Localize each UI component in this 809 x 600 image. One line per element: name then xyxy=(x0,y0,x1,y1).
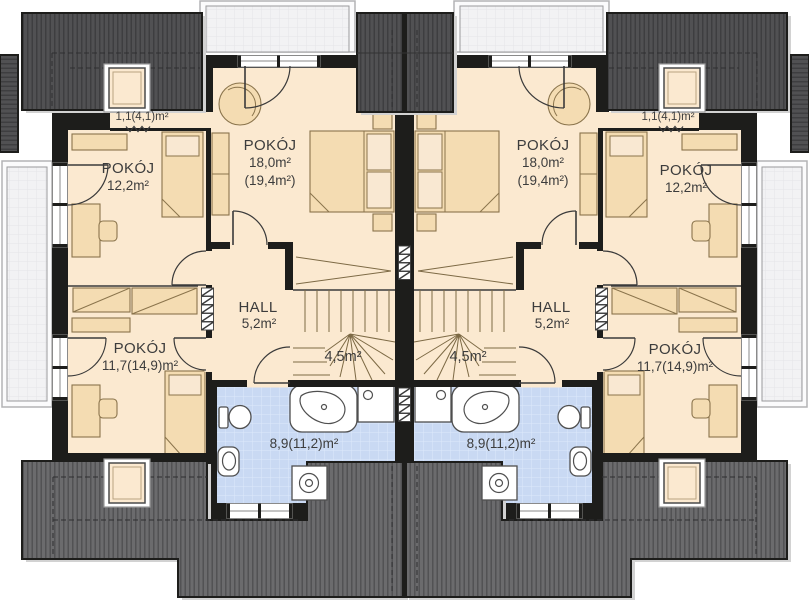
armchair xyxy=(548,83,590,125)
dormer-window xyxy=(104,64,150,112)
label-bedroom-back-name-left: POKÓJ xyxy=(114,341,167,356)
bathroom-window xyxy=(517,504,582,519)
roof-top-center xyxy=(357,13,457,115)
label-bathroom-area-left: 8,9(11,2)m² xyxy=(270,437,339,451)
chair xyxy=(692,221,710,241)
balcony-side-right xyxy=(757,161,807,407)
armchair xyxy=(219,83,261,125)
label-bedroom-front-area-right: 12,2m² xyxy=(665,181,707,195)
balcony-top-left xyxy=(200,1,355,52)
shelf xyxy=(72,318,130,332)
label-bedroom-large-area2-left: (19,4m²) xyxy=(244,174,295,188)
chair xyxy=(99,399,117,418)
wardrobe-strip-right xyxy=(611,286,741,314)
label-bedroom-large-name-left: POKÓJ xyxy=(244,138,297,153)
label-bedroom-back-area-right: 11,7(14,9)m² xyxy=(637,360,713,374)
balcony-top-right xyxy=(454,1,609,52)
label-bedroom-large-area-left: 18,0m² xyxy=(249,156,291,170)
label-staircase-area-right: 4,5m² xyxy=(449,350,486,365)
label-staircase-area-left: 4,5m² xyxy=(324,350,361,365)
desk xyxy=(72,204,100,257)
chair xyxy=(692,399,710,418)
shower xyxy=(415,385,451,422)
label-hall-name-right: HALL xyxy=(531,300,570,315)
roof-side-left xyxy=(0,55,18,152)
wardrobe-strip-left xyxy=(68,286,198,314)
balcony-door-window xyxy=(742,163,757,247)
floor-plan: 1,1(4,1)m² POKÓJ 12,2m² POKÓJ 18,0m² (19… xyxy=(0,0,809,600)
nightstand xyxy=(417,214,436,231)
vent-shaft xyxy=(399,246,411,280)
label-bathroom-area-right: 8,9(11,2)m² xyxy=(467,437,536,451)
single-bed xyxy=(606,132,647,217)
toilet xyxy=(558,406,590,429)
shower xyxy=(358,385,394,422)
label-attic-niche-right: 1,1(4,1)m² xyxy=(641,112,694,124)
label-bedroom-back-name-right: POKÓJ xyxy=(649,342,702,357)
vent-shaft xyxy=(202,288,214,330)
label-bedroom-back-area-left: 11,7(14,9)m² xyxy=(102,359,178,373)
sink xyxy=(570,447,591,476)
desk xyxy=(709,385,737,437)
single-bed xyxy=(165,371,205,456)
label-bedroom-large-name-right: POKÓJ xyxy=(517,138,570,153)
label-bedroom-large-area2-right: (19,4m²) xyxy=(517,174,568,188)
balcony-door-window xyxy=(742,335,757,400)
balcony-door-window xyxy=(53,163,68,247)
washing-machine xyxy=(292,466,327,500)
double-bed xyxy=(415,131,499,212)
double-bed xyxy=(310,131,394,212)
label-hall-area-right: 5,2m² xyxy=(535,317,570,331)
dormer-window xyxy=(659,459,705,507)
balcony-door-window xyxy=(489,56,571,68)
wardrobe xyxy=(212,133,229,215)
label-bedroom-front-name-left: POKÓJ xyxy=(102,161,155,176)
dormer-window xyxy=(659,64,705,112)
label-attic-niche-left: 1,1(4,1)m² xyxy=(115,112,168,124)
nightstand xyxy=(373,214,392,231)
bathroom-window xyxy=(227,504,292,519)
label-hall-area-left: 5,2m² xyxy=(242,317,277,331)
washing-machine xyxy=(482,466,517,500)
label-bedroom-front-name-right: POKÓJ xyxy=(660,163,713,178)
balcony-side-left xyxy=(2,161,52,407)
bathtub xyxy=(290,385,357,432)
label-bedroom-front-area-left: 12,2m² xyxy=(107,179,149,193)
sink xyxy=(218,447,239,476)
toilet xyxy=(219,406,251,429)
floor-plan-drawing xyxy=(0,0,809,600)
wardrobe xyxy=(580,133,597,215)
vent-shaft xyxy=(596,288,608,330)
shelf xyxy=(72,134,127,150)
roof-side-right xyxy=(791,55,809,152)
balcony-door-window xyxy=(53,335,68,400)
single-bed xyxy=(604,371,644,456)
vent-shaft xyxy=(399,388,411,422)
label-hall-name-left: HALL xyxy=(238,300,277,315)
dormer-window xyxy=(104,459,150,507)
label-bedroom-large-area-right: 18,0m² xyxy=(522,156,564,170)
chair xyxy=(99,221,117,241)
balcony-door-window xyxy=(238,56,320,68)
shelf xyxy=(679,318,737,332)
shelf xyxy=(682,134,737,150)
single-bed xyxy=(162,132,203,217)
bathtub xyxy=(452,385,519,432)
desk xyxy=(72,385,100,437)
desk xyxy=(709,204,737,257)
